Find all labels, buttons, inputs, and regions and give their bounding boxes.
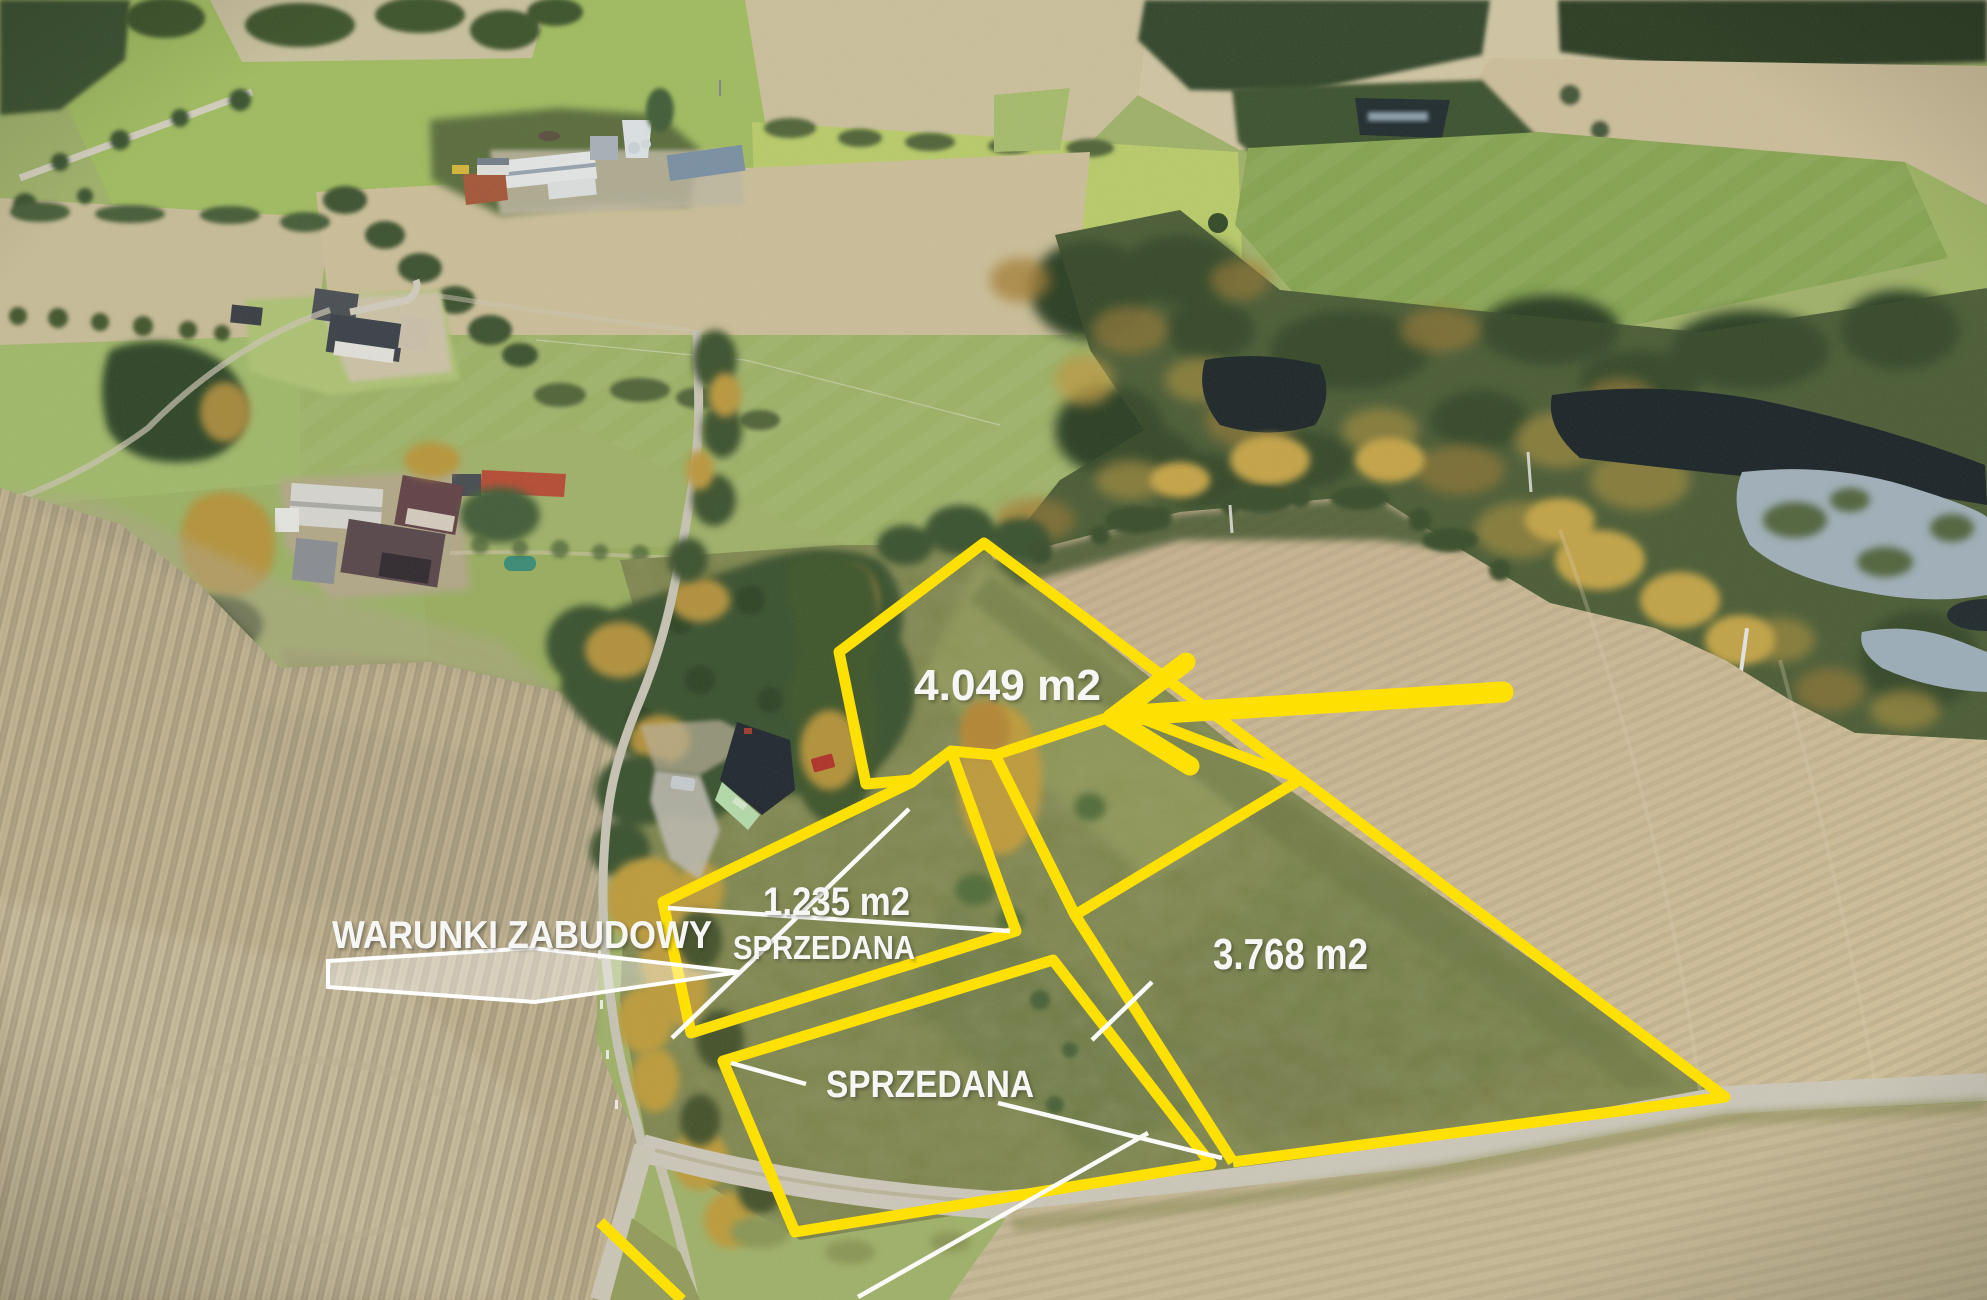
svg-text:1.235 m2: 1.235 m2 [763, 880, 910, 924]
svg-text:WARUNKI ZABUDOWY: WARUNKI ZABUDOWY [332, 914, 712, 957]
svg-text:SPRZEDANA: SPRZEDANA [826, 1064, 1034, 1106]
svg-text:4.049 m2: 4.049 m2 [914, 661, 1101, 710]
svg-text:SPRZEDANA: SPRZEDANA [733, 929, 915, 966]
svg-text:3.768 m2: 3.768 m2 [1213, 930, 1368, 979]
